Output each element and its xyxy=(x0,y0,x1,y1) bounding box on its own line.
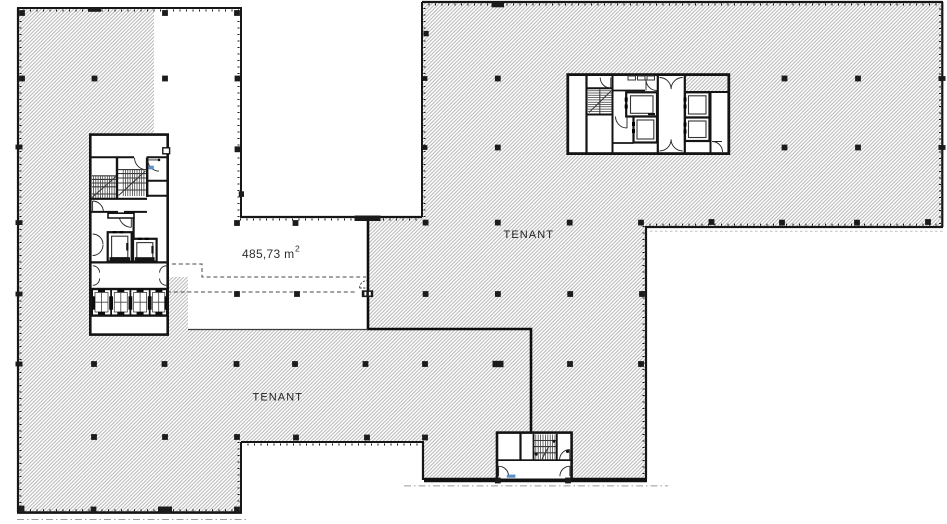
svg-text:TENANT: TENANT xyxy=(504,229,555,241)
svg-text:TENANT: TENANT xyxy=(253,392,304,404)
svg-text:485,73 m: 485,73 m xyxy=(242,247,294,261)
svg-text:2: 2 xyxy=(295,244,300,254)
